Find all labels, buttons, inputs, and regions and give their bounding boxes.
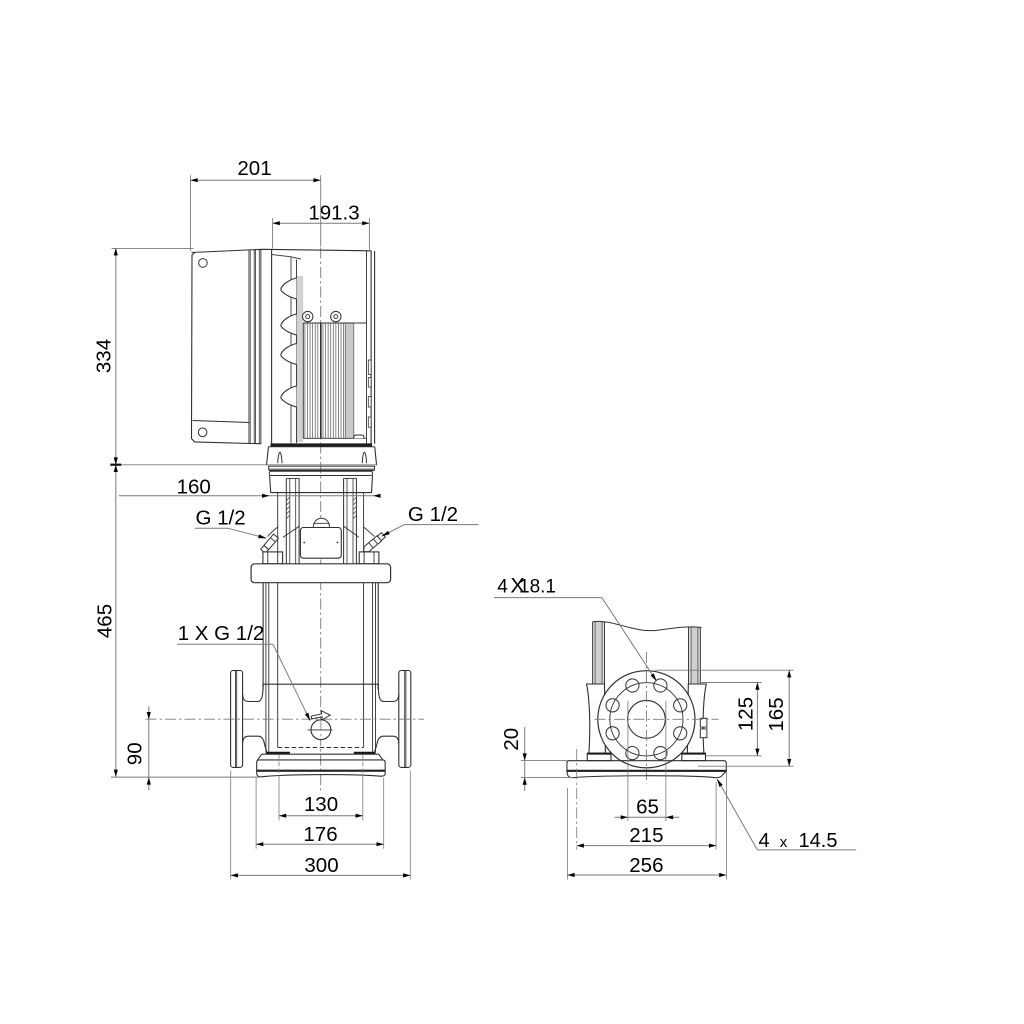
svg-text:465: 465 (94, 604, 117, 638)
svg-text:165: 165 (765, 697, 788, 731)
svg-text:1 X G 1/2: 1 X G 1/2 (178, 622, 265, 645)
svg-text:65: 65 (636, 795, 659, 818)
svg-text:160: 160 (177, 475, 211, 498)
svg-text:176: 176 (303, 823, 337, 846)
svg-text:G 1/2: G 1/2 (196, 507, 246, 530)
svg-text:256: 256 (629, 854, 663, 877)
svg-text:201: 201 (237, 157, 271, 180)
svg-text:191.3: 191.3 (308, 201, 359, 224)
svg-text:4X18.1: 4X18.1 (497, 574, 556, 598)
svg-text:20: 20 (500, 728, 523, 751)
svg-text:215: 215 (629, 824, 663, 847)
svg-text:125: 125 (734, 697, 757, 731)
svg-text:130: 130 (304, 793, 338, 816)
svg-text:90: 90 (124, 742, 147, 765)
svg-text:G 1/2: G 1/2 (408, 503, 458, 526)
svg-text:300: 300 (304, 854, 338, 877)
svg-text:334: 334 (93, 339, 116, 373)
